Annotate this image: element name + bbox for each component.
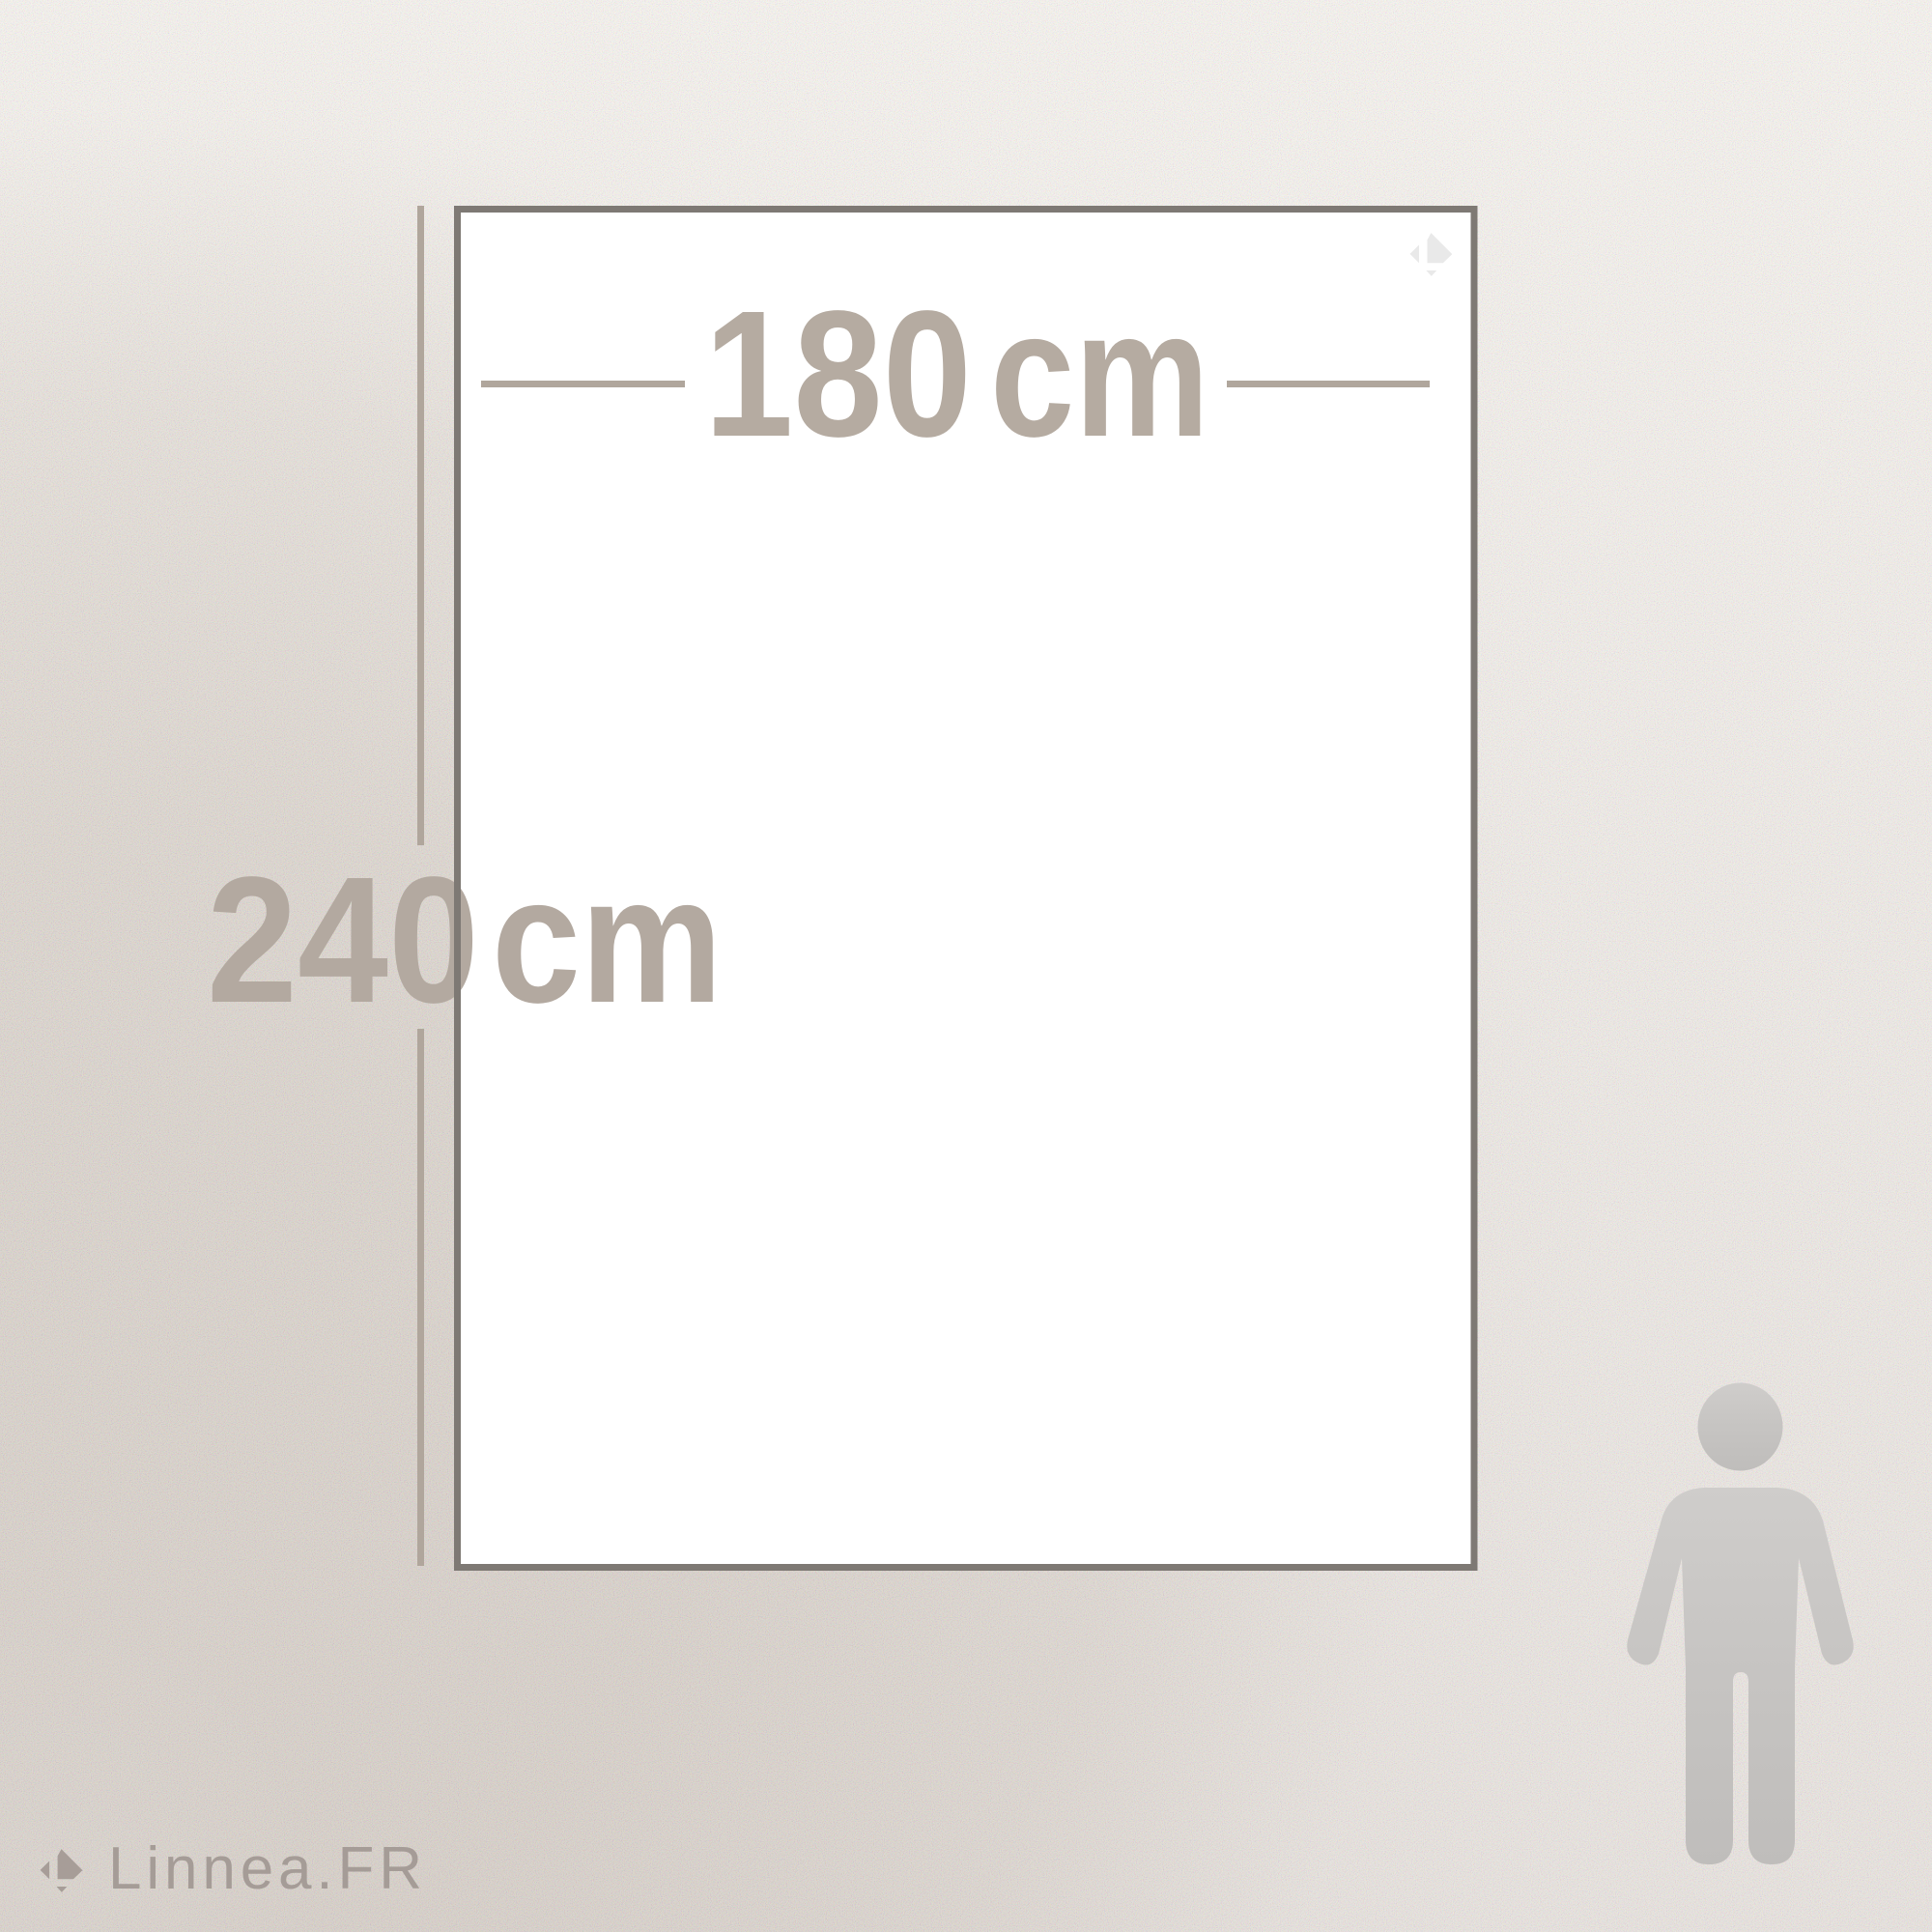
svg-text:cm: cm: [990, 274, 1209, 474]
svg-text:240: 240: [207, 840, 479, 1040]
svg-text:180: 180: [704, 274, 972, 474]
svg-text:cm: cm: [492, 840, 723, 1040]
